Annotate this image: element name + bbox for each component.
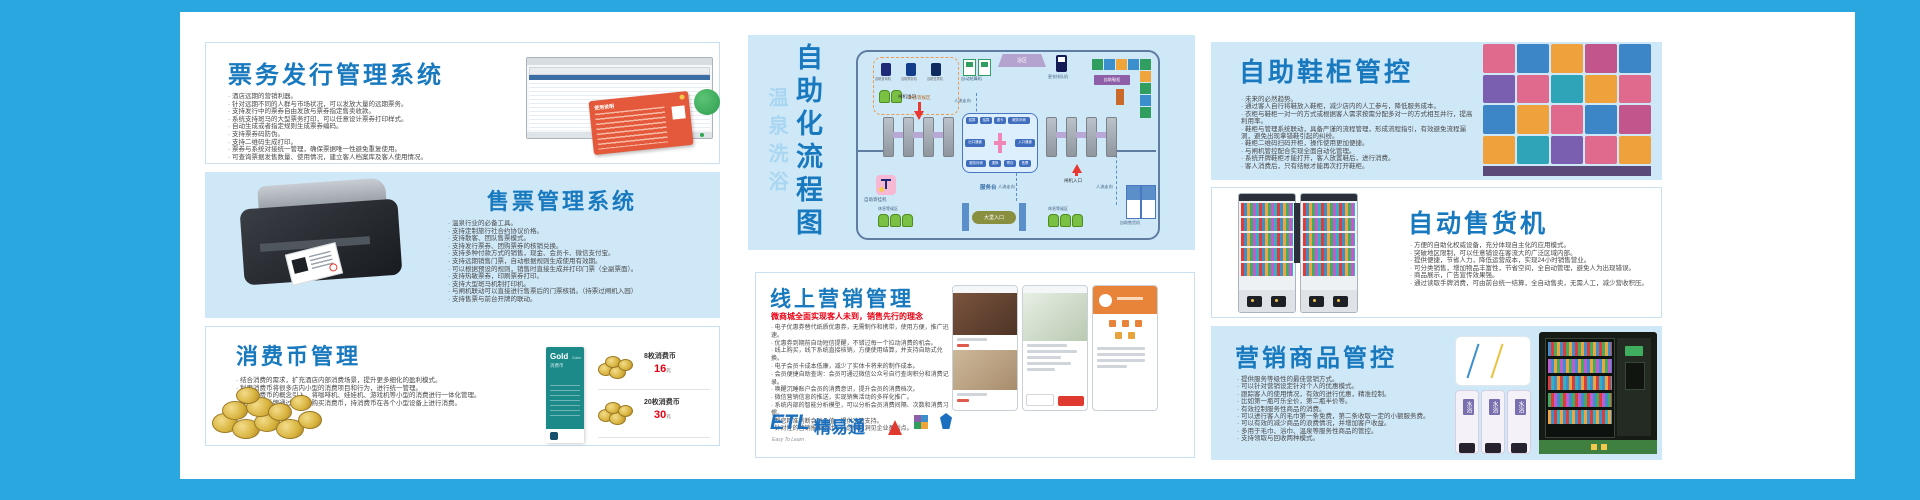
dot-marker — [679, 94, 684, 99]
bullet: 方便的自助化权威设备，充分体现自主化的应用模式。 — [1410, 242, 1652, 250]
gold-card-line3: 消费币 — [550, 363, 564, 369]
entry-arrow-stem — [1075, 167, 1078, 176]
ticket-card-lines — [595, 106, 668, 149]
service-chip: 退换 — [989, 160, 1001, 167]
service-island: 结算 结算 退卡 服务问询 出口通道 入口通道 服务问询 退换 寄存 售票 — [962, 113, 1038, 173]
trophy-badge-icon — [940, 413, 952, 429]
bath-zone-label: 浴区 — [1017, 57, 1027, 64]
lobby-pillar — [962, 203, 969, 231]
service-chip: 入口通道 — [1015, 139, 1035, 147]
kiosk3-label: 自助售票机 — [927, 78, 943, 82]
deposit-machine-label: 自助寄挂机 — [864, 198, 887, 203]
flow-direction-label: 人流走向 — [998, 185, 1015, 190]
sofa-icon — [878, 214, 914, 232]
ticket-card-title: 使用说明 — [594, 103, 615, 112]
panel-ticket-issue-title: 票务发行管理系统 — [228, 55, 444, 90]
gold-coins-image — [206, 385, 336, 443]
qr-code — [671, 105, 685, 119]
kiosk-icon — [881, 63, 891, 76]
gold-card-line1: Gold — [550, 352, 568, 361]
bottle-label: 水浴 — [1489, 399, 1500, 415]
avatar — [1099, 294, 1112, 307]
panel-ticket-issue: 票务发行管理系统 酒店远期的营销利器。 针对远期不同的人群与市场状况，可以发放大… — [205, 42, 720, 164]
ticket-qr-code — [291, 257, 308, 274]
bullet: 可分类销售，增加物品丰富性，节省空间，全自动管理，避免人为出现错误。 — [1410, 265, 1652, 273]
gold-card-logo — [550, 432, 558, 440]
exit-arrow-icon — [914, 111, 924, 125]
gate-pillar — [943, 117, 954, 157]
bullet: 支持多种付款方式的销售，现金、会员卡、微信支付宝。 — [448, 250, 710, 258]
panel-goods-bullets: 提供服务等级性的最佳营销方式。 可以针对营销设定针对个人的优惠模式。 跟踪客人的… — [1237, 376, 1449, 443]
phone-mockup-member-center — [1092, 285, 1158, 411]
service-chip: 退卡 — [994, 117, 1006, 124]
bullet: 支持散客、团队售票模式。 — [448, 235, 710, 243]
checkout-kiosk-icon — [978, 59, 991, 76]
queue-machine: 更衣排队机 — [1052, 55, 1092, 89]
bullet: 结合消费的需求，扩充酒店内部消费场景，提升更多细化的盈利模式。 — [236, 377, 536, 385]
bottle-label: 水浴 — [1463, 399, 1474, 415]
bullet: 酒店远期的营销利器。 — [228, 93, 508, 101]
bullet: 支持售票与前台开牌的联动。 — [448, 296, 710, 304]
corridor-right — [1115, 150, 1156, 152]
locker-floor — [1483, 166, 1651, 176]
flow-direction-label: 人流走向 — [1096, 185, 1113, 190]
gate-connector — [933, 132, 943, 138]
kiosk-waiting-area: 自助查询机 自助票务机 自助售票机 休息等候区 — [873, 57, 959, 115]
bullet: 可以有效的减少商品的浪费情况，并增加客户收益。 — [1237, 420, 1449, 427]
bullet: 系统开牌鞋柜才能打开，客人放置鞋后，进行消费。 — [1241, 155, 1477, 162]
ticket-red-seal — [329, 263, 339, 273]
map-vending-icon — [1141, 185, 1156, 219]
flow-direction-label: 人流走向 — [954, 99, 971, 104]
ticket-card: 使用说明 — [588, 91, 693, 155]
service-chip: 寄存 — [1004, 160, 1016, 167]
panel-coin-title: 消费币管理 — [236, 339, 361, 371]
bullet: 唤醒沉睡账户会员的消费意识，提升会员的消费档次。 — [771, 387, 949, 395]
waiting-area-label: 休息等候区 — [878, 207, 898, 211]
bullet: 鞋柜二维码扫码开柜，操作使用更加便捷。 — [1241, 140, 1477, 147]
bullet: 支持发行中的票券自由发放与票券指定售卖收款。 — [228, 108, 508, 116]
bottle-label: 水浴 — [1515, 399, 1526, 415]
bullet: 自动生成或者指定规则生成票券编码。 — [228, 123, 508, 131]
bullet: 可查询票据发售数量、使用情况，建立客人档案库及客人使用情况。 — [228, 154, 508, 162]
gate-connector — [893, 132, 903, 138]
bullet: 衣柜与鞋柜一对一的方式或根据客人需求按需分配多对一的方式相互并行，提高利用率。 — [1241, 111, 1477, 126]
bullet: 鞋柜与管理系统联动，具备严谨的流程管理，形成流程指引，有效避免流程漏洞，避免出现… — [1241, 126, 1477, 141]
panel-online-subtitle: 微商城全面实现客人未到，销售先行的理念 — [771, 311, 923, 322]
service-chip: 出口通道 — [965, 139, 985, 147]
price-value-2: 30元 — [654, 409, 671, 421]
etl-logo-brand: 精易通 — [814, 413, 865, 438]
sofa-icon — [1048, 214, 1084, 232]
service-chip: 售票 — [1019, 160, 1031, 167]
panel-ticket-sale-bullets: 温泉行业的必备工具。 支持定制旅行社合约协议价格。 支持散客、团队售票模式。 支… — [448, 220, 710, 304]
kiosk-icon — [931, 63, 941, 76]
bottle: 水浴 — [1481, 390, 1505, 454]
price-coins-2 — [598, 401, 634, 423]
gate-connector — [1076, 132, 1086, 138]
panel-ticket-sale-title: 售票管理系统 — [487, 184, 637, 216]
bullet: 比如第一瓶可乐全价，第二瓶半价等。 — [1237, 398, 1449, 405]
bullet: 支持领取与回收两种模式。 — [1237, 435, 1449, 442]
etl-logo-tagline: Easy To Learn — [772, 437, 804, 443]
panel-vending: 自动售货机 方便的自助化权威设备，充分体现自主化的应用模式。 突破地区限制，可以… — [1211, 187, 1662, 318]
bullet: 可以针对营销设定针对个人的优惠模式。 — [1237, 383, 1449, 390]
gold-card-line2: Coins — [572, 356, 581, 360]
panel-goods-control: 营销商品管控 提供服务等级性的最佳营销方式。 可以针对营销设定针对个人的优惠模式… — [1211, 326, 1662, 460]
kiosk-icon — [906, 63, 916, 76]
bullet: 有效控制服务性商品的消费。 — [1237, 406, 1449, 413]
bullet: 线上购买，线下系统直接核销，方便使用结算，并支持自助式兑换。 — [771, 348, 949, 364]
gate-connector — [1096, 132, 1106, 138]
panel-shoe-title: 自助鞋柜管控 — [1239, 52, 1413, 89]
gold-card: Gold Coins 消费币 — [546, 347, 584, 443]
gate-exit-label: 闸机出口 — [898, 95, 916, 100]
gold-card-text-lines — [550, 385, 580, 417]
shoe-cabinet-graphic: 自助鞋柜 — [1092, 59, 1160, 119]
price-name-2: 20枚消费币 — [644, 397, 680, 407]
kiosk1-label: 自助查询机 — [875, 78, 891, 82]
vending-control-strip — [1294, 203, 1300, 263]
leaf-badge — [694, 89, 720, 115]
flow-main-title: 自助化流程图 — [788, 43, 827, 241]
flow-side-title: 温泉洗浴 — [762, 87, 791, 199]
bullet: 支持远期销售门票，自动根据规则生成使用有效期。 — [448, 258, 710, 266]
bullet: 通过读取手牌消费，可由前台统一结算，全自动售卖，无需人工，减少营收积压。 — [1410, 280, 1652, 288]
bullet: 提供便捷，节省人力，降低运营成本，实现24小时销售营业。 — [1410, 257, 1652, 265]
bullet: 电子优惠券替代纸质优惠券，无需制作和携带，使用方便，推广迅速。 — [771, 325, 949, 341]
panel-goods-title: 营销商品管控 — [1235, 338, 1397, 373]
fridge-photo — [1539, 332, 1657, 454]
checkout-kiosk-icon — [963, 59, 976, 76]
gate-entry-label: 闸机入口 — [1064, 179, 1082, 184]
panel-shoe-cabinet: 自助鞋柜管控 未来的必然趋势。 通过客人自行将鞋放入鞋柜，减少店内的人工参与，降… — [1211, 42, 1662, 180]
lobby-entry-label: 大堂入口 — [984, 214, 1004, 221]
cart-button — [1026, 394, 1054, 406]
fridge-door — [1545, 338, 1615, 438]
bottle: 水浴 — [1507, 390, 1531, 454]
panel-vending-bullets: 方便的自助化权威设备，充分体现自主化的应用模式。 突破地区限制，可以任意铺设在客… — [1410, 242, 1652, 287]
gate-connector — [1056, 132, 1066, 138]
phone-mockup-product-page — [1022, 285, 1088, 411]
coin-price-list: 8枚消费币 16元 20枚消费币 30元 — [598, 345, 716, 445]
service-chip: 结算 — [966, 117, 978, 124]
gate-pillar — [1106, 117, 1117, 157]
service-chip: 结算 — [980, 117, 992, 124]
window-toolbar — [529, 67, 710, 75]
bullet: 电子会员卡成本低廉，减少了实体卡将来的制作成本。 — [771, 364, 949, 372]
map-vending-label: 自助售货机 — [1120, 221, 1140, 225]
amenity-kit-photo — [1455, 336, 1531, 386]
auto-checkout-machine: 自动结算机 — [963, 59, 993, 89]
shoe-locker-photo — [1483, 44, 1651, 164]
waiting-area-label: 休息等候区 — [1048, 207, 1068, 211]
bottles-photo: 水浴 水浴 水浴 — [1455, 390, 1531, 454]
bullet: 温泉行业的必备工具。 — [448, 220, 710, 228]
etl-logo: ETL 精易通 Easy To Learn — [770, 411, 970, 451]
auto-checkout-label: 自动结算机 — [961, 77, 982, 82]
panel-online-marketing: 线上营销管理 微商城全面实现客人未到，销售先行的理念 电子优惠券替代纸质优惠券，… — [755, 272, 1195, 458]
bullet: 客人消费后，只有结帐才能再次打开鞋柜。 — [1241, 163, 1477, 170]
service-chip: 服务问询 — [966, 160, 986, 167]
service-cross-icon — [994, 133, 1006, 153]
shoe-cabinet-label: 自助鞋柜 — [1094, 75, 1130, 85]
bullet: 支持票券码防伪。 — [228, 131, 508, 139]
price-value-1: 16元 — [654, 363, 671, 375]
bullet: 突破地区限制，可以任意铺设在客流大的广泛区域内部。 — [1410, 250, 1652, 258]
buy-button — [1058, 396, 1084, 406]
map-vending-icon — [1126, 185, 1141, 219]
kiosk2-label: 自助票务机 — [901, 78, 917, 82]
panel-vending-title: 自动售货机 — [1408, 204, 1548, 240]
divider — [598, 389, 710, 390]
price-name-1: 8枚消费币 — [644, 351, 676, 361]
window-titlebar — [527, 58, 712, 65]
queue-kiosk-icon — [1056, 55, 1067, 72]
divider — [598, 437, 710, 438]
flame-badge-icon — [888, 413, 902, 435]
gate-connector — [913, 132, 923, 138]
fridge-base — [1539, 440, 1657, 454]
price-coins-1 — [598, 355, 634, 377]
service-chip: 服务问询 — [1008, 117, 1030, 124]
phone-mockup-spa-list — [952, 285, 1018, 411]
panel-ticket-sale: 售票管理系统 温泉行业的必备工具。 支持定制旅行社合约协议价格。 支持散客、团队… — [205, 172, 720, 318]
panel-online-title: 线上营销管理 — [770, 283, 914, 313]
fridge-side-panel — [1617, 338, 1651, 436]
bullet: 支持热敏票券，印刷票券打印。 — [448, 273, 710, 281]
lobby-pillar — [1019, 203, 1026, 231]
panel-shoe-bullets: 未来的必然趋势。 通过客人自行将鞋放入鞋柜，减少店内的人工参与，降低服务成本。 … — [1241, 96, 1477, 170]
etl-logo-mark: ETL — [770, 411, 810, 435]
cube-badge-icon — [914, 415, 928, 429]
queue-machine-label: 更衣排队机 — [1048, 75, 1068, 79]
panel-coin: 消费币管理 结合消费的需求，扩充酒店内部消费场景，提升更多细化的盈利模式。 利用… — [205, 326, 720, 446]
status-dot — [700, 133, 704, 137]
bath-zone: 浴区 — [998, 54, 1046, 67]
panel-flow-map: 温泉洗浴 自助化流程图 自助查询机 自助票务机 自助售票机 休息等候区 自动结算… — [748, 35, 1195, 250]
panel-ticket-issue-bullets: 酒店远期的营销利器。 针对远期不同的人群与市场状况，可以发放大量的远期票务。 支… — [228, 93, 508, 161]
deposit-machine — [876, 175, 896, 195]
bullet: 商品展示，广告宣传效果强。 — [1410, 272, 1652, 280]
ticket-printer-image — [230, 178, 415, 310]
bullet: 会员便捷自助查询：会员可通过微信公众号自行查询积分和消费记录。 — [771, 372, 949, 388]
bullet: 通过客人自行将鞋放入鞋柜，减少店内的人工参与，降低服务成本。 — [1241, 103, 1477, 110]
bottle: 水浴 — [1455, 390, 1479, 454]
bullet: 票券与系统对接统一管理，确保票据唯一性避免重复使用。 — [228, 146, 508, 154]
poster: 票务发行管理系统 酒店远期的营销利器。 针对远期不同的人群与市场状况，可以发放大… — [0, 0, 1920, 500]
service-desk-label: 服务台 — [980, 185, 997, 191]
flow-path — [1116, 155, 1117, 205]
vending-machines-photo — [1238, 193, 1368, 314]
bullet: 与闸机联动可以直接进行售票后的门票核销。（持票过闸机入园） — [448, 288, 710, 296]
bullet: 微信营销信息的推送，实现销售活动的多样化推广。 — [771, 395, 949, 403]
corridor-left — [856, 150, 883, 152]
lobby-entry: 大堂入口 — [972, 211, 1016, 224]
